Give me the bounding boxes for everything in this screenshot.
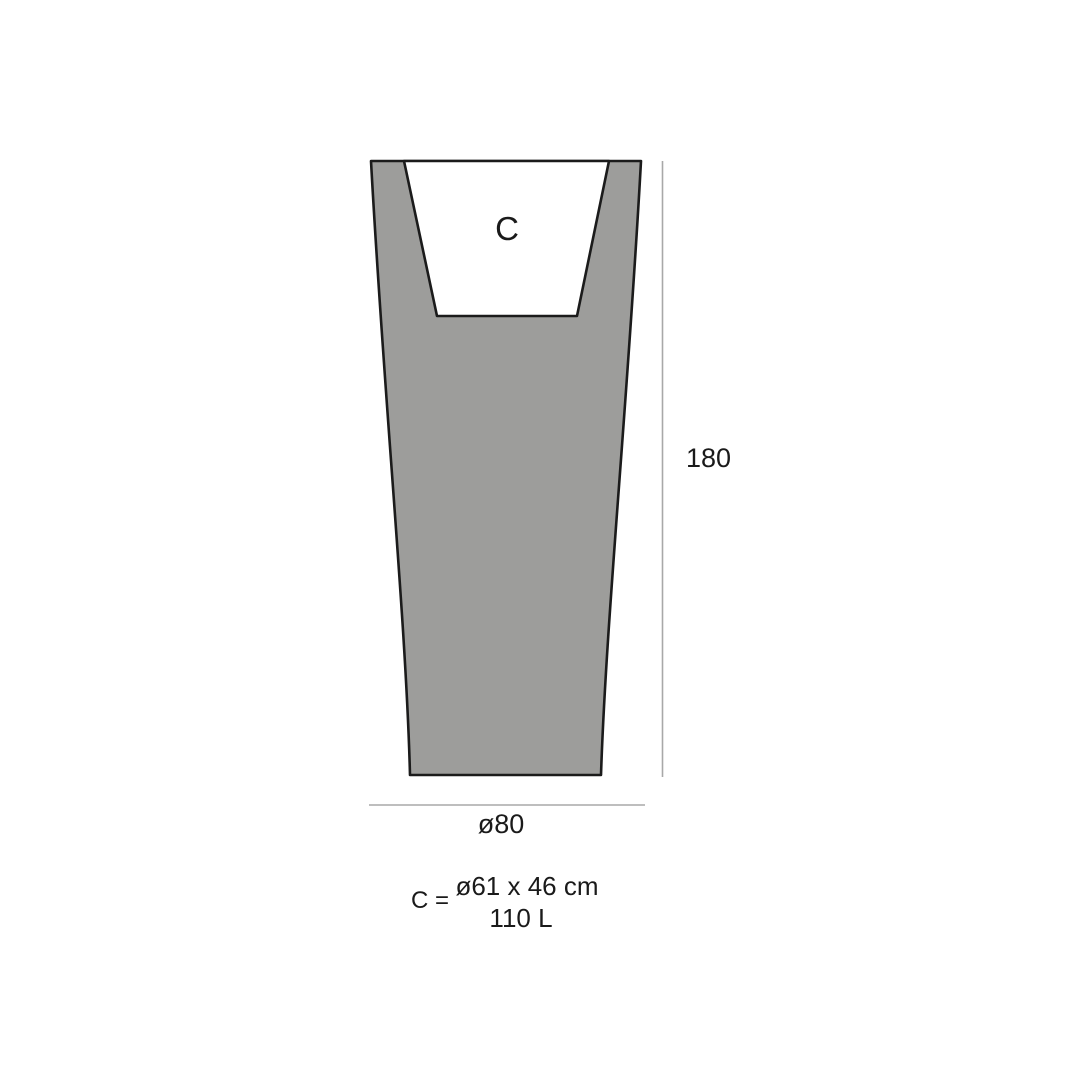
cavity-label: C	[495, 210, 519, 247]
legend-volume-text: 110 L	[489, 903, 552, 933]
legend-prefix: C =	[411, 887, 449, 914]
legend-dimensions-text: ø61 x 46 cm	[455, 871, 598, 901]
planter-dimension-diagram: C 180 ø80 C = ø61 x 46 cm 110 L	[0, 0, 1080, 1080]
diagram-canvas: C 180 ø80 C = ø61 x 46 cm 110 L	[0, 0, 1080, 1080]
width-dimension-label: ø80	[478, 809, 525, 839]
height-dimension-label: 180	[686, 443, 731, 473]
